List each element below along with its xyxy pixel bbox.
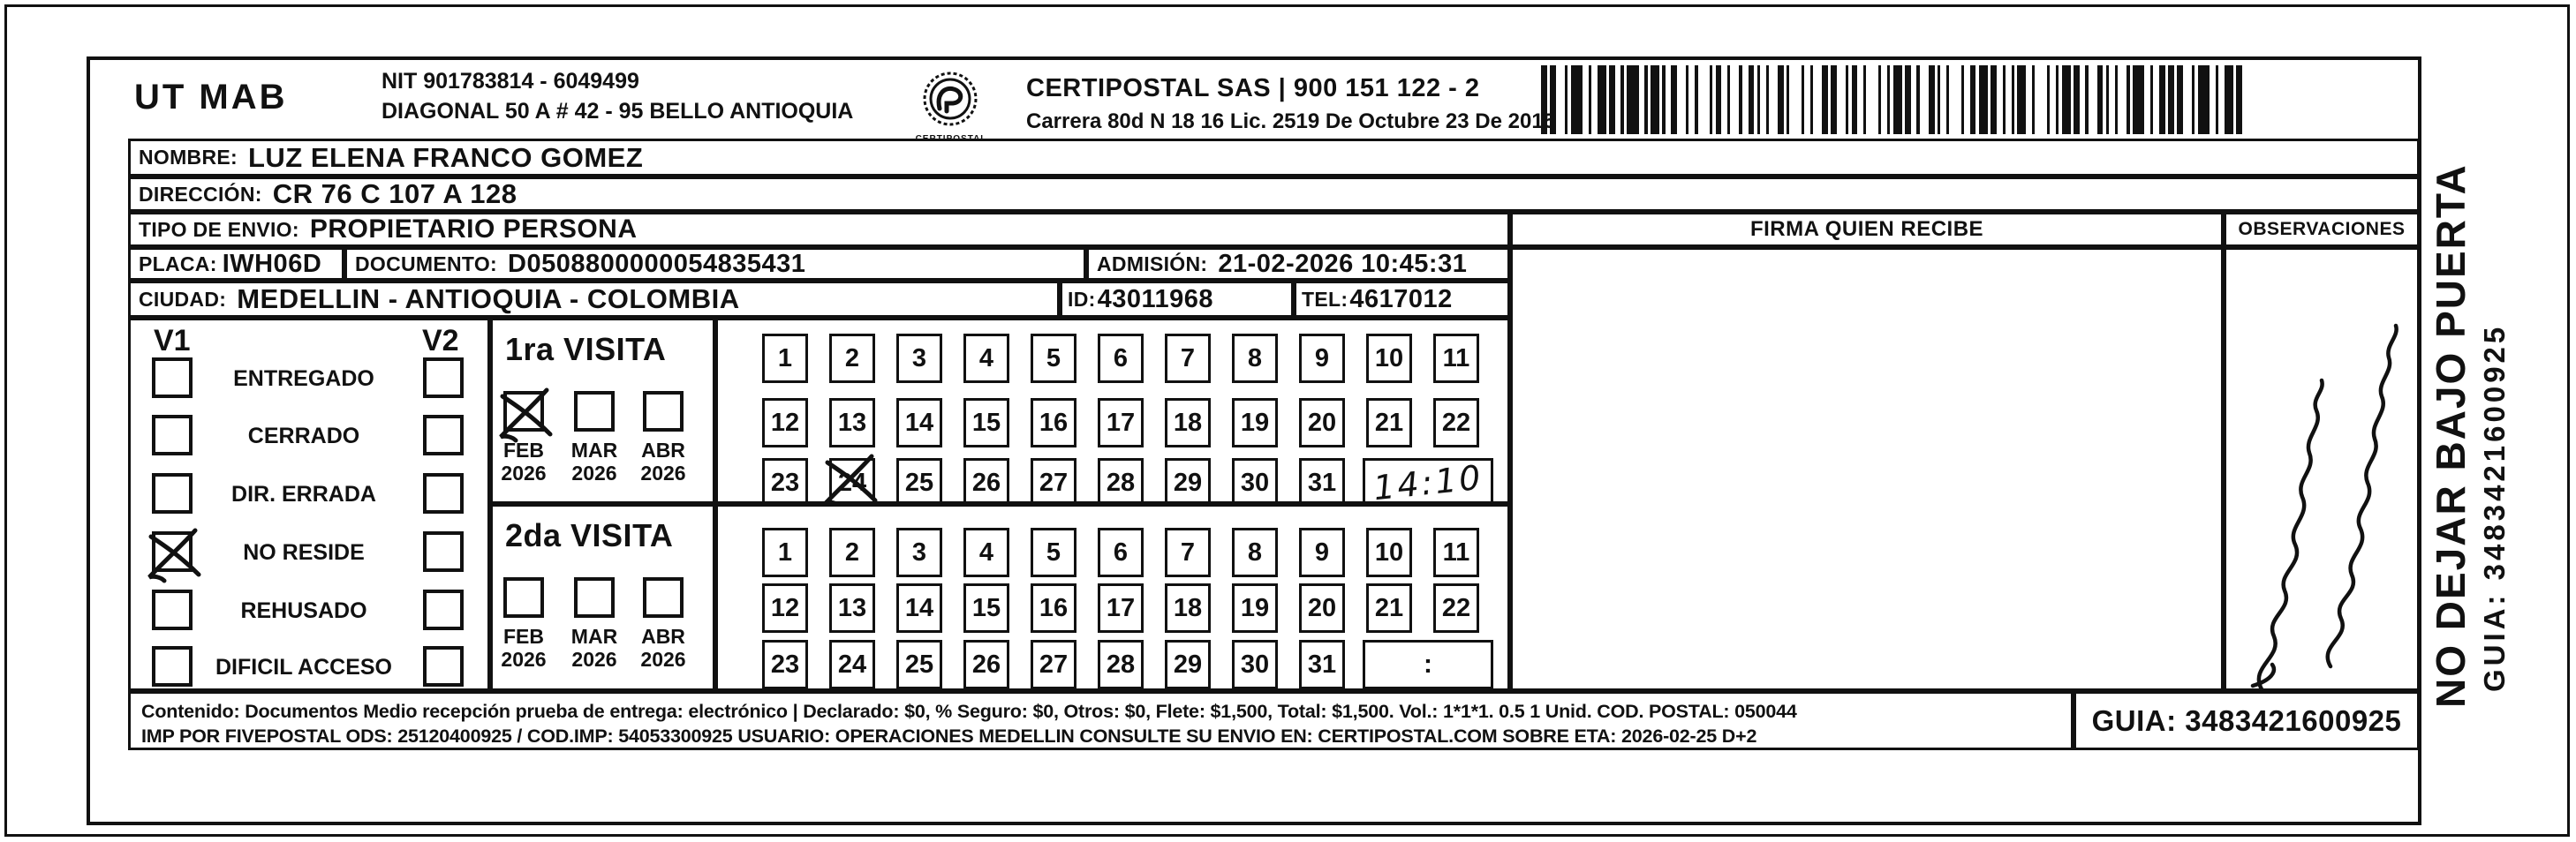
day-cell-15-visit-1: 15 (963, 398, 1009, 447)
placa-value: IWH06D (223, 250, 322, 279)
row-tipo-envio: TIPO DE ENVIO: PROPIETARIO PERSONA (128, 212, 1510, 247)
barcode-bar (2017, 65, 2026, 134)
day-number: 18 (1174, 594, 1202, 623)
barcode-bar (2236, 65, 2242, 134)
barcode-bar (1695, 65, 1697, 134)
day-cell-2-visit-1: 2 (829, 334, 875, 383)
nombre-label: NOMBRE: (139, 146, 238, 169)
day-cell-4-visit-1: 4 (963, 334, 1009, 383)
day-cell-14-visit-2: 14 (896, 583, 942, 633)
day-number: 8 (1248, 344, 1262, 373)
day-number: 17 (1107, 594, 1135, 623)
day-cell-18-visit-1: 18 (1165, 398, 1211, 447)
day-number: 25 (905, 469, 933, 498)
barcode-bar (1802, 65, 1804, 134)
day-cell-4-visit-2: 4 (963, 528, 1009, 577)
barcode-bar (2047, 65, 2050, 134)
side-guia-text: GUIA: 3483421600925 (2478, 136, 2512, 708)
status-label-cerrado: CERRADO (182, 424, 426, 449)
barcode-bar (2150, 65, 2153, 134)
day-number: 27 (1039, 650, 1068, 680)
day-cell-17-visit-2: 17 (1098, 583, 1144, 633)
day-number: 29 (1174, 469, 1202, 498)
day-cell-22-visit-1: 22 (1433, 398, 1479, 447)
day-cell-10-visit-2: 10 (1366, 528, 1412, 577)
day-number: 29 (1174, 650, 1202, 680)
day-cell-25-visit-2: 25 (896, 640, 942, 689)
day-number: 23 (771, 469, 799, 498)
v2-column-title: V2 (422, 324, 459, 358)
visit-1-title: 1ra VISITA (505, 331, 666, 368)
month-label: ABR (626, 625, 700, 648)
barcode-bar (1852, 65, 1858, 134)
day-number: 7 (1181, 538, 1195, 568)
day-number: 9 (1315, 538, 1329, 568)
day-cell-25-visit-1: 25 (896, 458, 942, 507)
day-cell-17-visit-1: 17 (1098, 398, 1144, 447)
day-cell-23-visit-1: 23 (762, 458, 808, 507)
day-number: 16 (1039, 409, 1068, 438)
day-cell-20-visit-1: 20 (1299, 398, 1345, 447)
day-number: 1 (778, 344, 792, 373)
month-label: MAR (557, 439, 631, 462)
day-cell-29-visit-2: 29 (1165, 640, 1211, 689)
barcode-bar (1970, 65, 1976, 134)
admision-label: ADMISIÓN: (1097, 252, 1207, 276)
status-label-dir-errada: DIR. ERRADA (182, 482, 426, 507)
day-number: 30 (1241, 469, 1269, 498)
contenido-line2: IMP POR FIVEPOSTAL ODS: 25120400925 / CO… (141, 725, 1756, 748)
barcode-bar (2032, 65, 2035, 134)
day-number: 15 (972, 409, 1001, 438)
row-direccion: DIRECCIÓN: CR 76 C 107 A 128 (128, 177, 2420, 212)
day-cell-19-visit-1: 19 (1232, 398, 1278, 447)
barcode-bar (2097, 65, 2104, 134)
day-number: 18 (1174, 409, 1202, 438)
barcode-bar (2133, 65, 2144, 134)
day-cell-1-visit-2: 1 (762, 528, 808, 577)
barcode-bar (1822, 65, 1828, 134)
day-number: 4 (979, 344, 993, 373)
day-number: 2 (845, 538, 859, 568)
day-cell-26-visit-1: 26 (963, 458, 1009, 507)
barcode-bar (2003, 65, 2006, 134)
day-number: 6 (1114, 344, 1128, 373)
barcode-bar (1671, 65, 1677, 134)
month-checkbox-abr-visit-2 (643, 577, 684, 618)
barcode-bar (1979, 65, 1988, 134)
day-number: 19 (1241, 594, 1269, 623)
day-number: 12 (771, 409, 799, 438)
day-cell-7-visit-2: 7 (1165, 528, 1211, 577)
day-number: 17 (1107, 409, 1135, 438)
day-cell-29-visit-1: 29 (1165, 458, 1211, 507)
observaciones-header: OBSERVACIONES (2224, 212, 2420, 247)
year-label: 2026 (557, 648, 631, 671)
day-number: 22 (1442, 409, 1470, 438)
year-label: 2026 (626, 648, 700, 671)
month-checkbox-mar-visit-2 (574, 577, 615, 618)
checkbox-v2-no-reside (423, 531, 464, 572)
day-number: 19 (1241, 409, 1269, 438)
barcode-bar (1749, 65, 1755, 134)
day-cell-18-visit-2: 18 (1165, 583, 1211, 633)
barcode-bar (1627, 65, 1638, 134)
day-cell-2-visit-2: 2 (829, 528, 875, 577)
month-checkbox-feb-visit-1 (503, 391, 544, 432)
day-number: 5 (1046, 538, 1061, 568)
year-label: 2026 (557, 462, 631, 485)
checkbox-v2-rehusado (423, 590, 464, 630)
barcode-bar (1757, 65, 1760, 134)
tipo-envio-label: TIPO DE ENVIO: (139, 218, 299, 242)
day-number: 20 (1308, 594, 1336, 623)
scanned-delivery-form: UT MAB NIT 901783814 - 6049499 DIAGONAL … (0, 0, 2576, 842)
day-cell-14-visit-1: 14 (896, 398, 942, 447)
time-box-visit-2: : (1363, 640, 1493, 689)
barcode-bar (1739, 65, 1741, 134)
day-number: 30 (1241, 650, 1269, 680)
day-cell-1-visit-1: 1 (762, 334, 808, 383)
day-cell-24-visit-2: 24 (829, 640, 875, 689)
cell-placa: PLACA: IWH06D (128, 247, 344, 281)
day-cell-10-visit-1: 10 (1366, 334, 1412, 383)
barcode-bar (1651, 65, 1659, 134)
documento-label: DOCUMENTO: (355, 252, 497, 276)
day-number: 12 (771, 594, 799, 623)
observaciones-area (2224, 247, 2420, 691)
day-cell-22-visit-2: 22 (1433, 583, 1479, 633)
month-label: ABR (626, 439, 700, 462)
sender-address: DIAGONAL 50 A # 42 - 95 BELLO ANTIOQUIA (381, 99, 853, 124)
barcode (1541, 65, 2243, 134)
day-number: 7 (1181, 344, 1195, 373)
month-checkbox-feb-visit-2 (503, 577, 544, 618)
tipo-envio-value: PROPIETARIO PERSONA (310, 214, 638, 244)
barcode-bar (1565, 65, 1568, 134)
day-cell-5-visit-1: 5 (1031, 334, 1076, 383)
status-label-rehusado: REHUSADO (182, 598, 426, 624)
day-cell-30-visit-2: 30 (1232, 640, 1278, 689)
barcode-bar (2012, 65, 2014, 134)
day-number: 13 (838, 409, 866, 438)
day-number: 21 (1375, 409, 1403, 438)
barcode-bar (1644, 65, 1647, 134)
visit-2-title: 2da VISITA (505, 517, 673, 554)
barcode-bar (2062, 65, 2071, 134)
day-cell-30-visit-1: 30 (1232, 458, 1278, 507)
barcode-bar (2106, 65, 2109, 134)
tel-value: 4617012 (1349, 285, 1452, 314)
documento-value: D0508800000054835431 (508, 250, 805, 279)
day-cell-20-visit-2: 20 (1299, 583, 1345, 633)
observaciones-handwriting (2226, 250, 2422, 694)
visit-2-day-grid: 1234567891011121314151617181920212223242… (715, 504, 1510, 691)
day-cell-27-visit-1: 27 (1031, 458, 1076, 507)
day-number: 2 (845, 344, 859, 373)
day-number: 3 (912, 538, 926, 568)
barcode-bar (1571, 65, 1583, 134)
contenido-cell: Contenido: Documentos Medio recepción pr… (128, 691, 2074, 750)
barcode-bar (1766, 65, 1769, 134)
barcode-bar (1916, 65, 1919, 134)
barcode-bar (2198, 65, 2210, 134)
day-number: 28 (1107, 650, 1135, 680)
barcode-bar (1831, 65, 1837, 134)
day-number: 5 (1046, 344, 1061, 373)
barcode-bar (1878, 65, 1881, 134)
day-number: 10 (1375, 538, 1403, 568)
checkbox-v2-dificil-acceso (423, 646, 464, 687)
barcode-bar (1662, 65, 1665, 134)
barcode-bar (2074, 65, 2080, 134)
status-label-no-reside: NO RESIDE (182, 540, 426, 566)
ciudad-value: MEDELLIN - ANTIOQUIA - COLOMBIA (237, 283, 739, 315)
day-cell-31-visit-1: 31 (1299, 458, 1345, 507)
day-number: 28 (1107, 469, 1135, 498)
day-number: 27 (1039, 469, 1068, 498)
barcode-bar (1541, 65, 1547, 134)
day-number: 31 (1308, 469, 1336, 498)
day-number: 26 (972, 469, 1001, 498)
day-number: 9 (1315, 344, 1329, 373)
barcode-bar (1589, 65, 1591, 134)
day-cell-19-visit-2: 19 (1232, 583, 1278, 633)
day-cell-12-visit-1: 12 (762, 398, 808, 447)
sender-name: UT MAB (134, 78, 288, 117)
handwritten-time: 14:10 (1371, 458, 1484, 508)
barcode-bar (1938, 65, 1940, 134)
time-box-visit-1: 14:10 (1363, 458, 1493, 507)
barcode-bar (2177, 65, 2183, 134)
day-cell-26-visit-2: 26 (963, 640, 1009, 689)
day-number: 10 (1375, 344, 1403, 373)
barcode-bar (1686, 65, 1688, 134)
ciudad-label: CIUDAD: (139, 288, 226, 312)
admision-value: 21-02-2026 10:45:31 (1218, 250, 1467, 279)
day-number: 26 (972, 650, 1001, 680)
barcode-bar (2159, 65, 2165, 134)
day-cell-3-visit-1: 3 (896, 334, 942, 383)
day-cell-9-visit-2: 9 (1299, 528, 1345, 577)
barcode-bar (1887, 65, 1890, 134)
day-cell-16-visit-1: 16 (1031, 398, 1076, 447)
day-number: 22 (1442, 594, 1470, 623)
day-number: 11 (1443, 344, 1470, 373)
barcode-bar (1929, 65, 1935, 134)
barcode-bar (1946, 65, 1949, 134)
certipostal-logo-icon (915, 67, 986, 134)
license-line: Carrera 80d N 18 16 Lic. 2519 De Octubre… (1026, 109, 1555, 134)
day-number: 16 (1039, 594, 1068, 623)
day-number: 13 (838, 594, 866, 623)
barcode-bar (1620, 65, 1623, 134)
barcode-bar (2168, 65, 2174, 134)
barcode-bar (1716, 65, 1722, 134)
day-cell-21-visit-2: 21 (1366, 583, 1412, 633)
barcode-bar (1961, 65, 1964, 134)
day-number: 14 (905, 409, 933, 438)
barcode-bar (1727, 65, 1730, 134)
barcode-bar (1778, 65, 1784, 134)
cell-documento: DOCUMENTO: D0508800000054835431 (344, 247, 1086, 281)
cell-ciudad: CIUDAD: MEDELLIN - ANTIOQUIA - COLOMBIA (128, 281, 1060, 318)
barcode-bar (1863, 65, 1866, 134)
day-number: 14 (905, 594, 933, 623)
month-label: FEB (487, 439, 561, 462)
barcode-bar (1787, 65, 1789, 134)
side-warning-text: NO DEJAR BAJO PUERTA (2427, 136, 2474, 708)
time-placeholder: : (1424, 650, 1432, 680)
barcode-bar (2192, 65, 2195, 134)
id-label: ID: (1068, 288, 1096, 312)
day-cell-13-visit-1: 13 (829, 398, 875, 447)
tel-label: TEL: (1302, 288, 1348, 312)
day-number: 11 (1443, 538, 1470, 568)
checkbox-v2-dir-errada (423, 473, 464, 514)
day-number: 6 (1114, 538, 1128, 568)
barcode-bar (1550, 65, 1556, 134)
year-label: 2026 (487, 462, 561, 485)
day-cell-31-visit-2: 31 (1299, 640, 1345, 689)
barcode-bar (1905, 65, 1911, 134)
checkbox-v2-entregado (423, 357, 464, 398)
barcode-bar (2216, 65, 2218, 134)
day-cell-8-visit-1: 8 (1232, 334, 1278, 383)
visit-1-day-grid: 1234567891011121314151617181920212223242… (715, 318, 1510, 504)
day-cell-15-visit-2: 15 (963, 583, 1009, 633)
day-cell-3-visit-2: 3 (896, 528, 942, 577)
barcode-bar (1810, 65, 1813, 134)
cell-id: ID: 43011968 (1060, 281, 1294, 318)
row-nombre: NOMBRE: LUZ ELENA FRANCO GOMEZ (128, 139, 2420, 177)
firma-signature-area (1510, 247, 2224, 691)
day-number: 8 (1248, 538, 1262, 568)
barcode-bar (1710, 65, 1712, 134)
day-number: 3 (912, 344, 926, 373)
direccion-label: DIRECCIÓN: (139, 183, 262, 207)
day-cell-28-visit-2: 28 (1098, 640, 1144, 689)
handwritten-x-mark (823, 452, 880, 508)
day-cell-8-visit-2: 8 (1232, 528, 1278, 577)
day-cell-11-visit-2: 11 (1433, 528, 1479, 577)
year-label: 2026 (487, 648, 561, 671)
id-value: 43011968 (1098, 285, 1213, 314)
day-cell-21-visit-1: 21 (1366, 398, 1412, 447)
handwritten-x-mark (498, 386, 555, 442)
day-number: 24 (838, 650, 866, 680)
day-number: 20 (1308, 409, 1336, 438)
cell-tel: TEL: 4617012 (1294, 281, 1510, 318)
day-cell-27-visit-2: 27 (1031, 640, 1076, 689)
barcode-bar (2115, 65, 2118, 134)
barcode-bar (2127, 65, 2129, 134)
day-number: 21 (1375, 594, 1403, 623)
day-cell-12-visit-2: 12 (762, 583, 808, 633)
day-cell-6-visit-1: 6 (1098, 334, 1144, 383)
month-checkbox-mar-visit-1 (574, 391, 615, 432)
status-label-dificil-acceso: DIFICIL ACCESO (182, 655, 426, 680)
month-label: FEB (487, 625, 561, 648)
barcode-bar (2085, 65, 2088, 134)
day-cell-13-visit-2: 13 (829, 583, 875, 633)
day-number: 25 (905, 650, 933, 680)
day-number: 23 (771, 650, 799, 680)
barcode-bar (2225, 65, 2233, 134)
barcode-bar (1609, 65, 1615, 134)
checkbox-v2-cerrado (423, 415, 464, 455)
day-cell-6-visit-2: 6 (1098, 528, 1144, 577)
month-label: MAR (557, 625, 631, 648)
nombre-value: LUZ ELENA FRANCO GOMEZ (248, 142, 643, 174)
company-line: CERTIPOSTAL SAS | 900 151 122 - 2 (1026, 74, 1480, 103)
side-rotated-text: NO DEJAR BAJO PUERTA GUIA: 3483421600925 (2427, 136, 2519, 708)
placa-label: PLACA: (139, 252, 217, 276)
day-number: 1 (778, 538, 792, 568)
barcode-bar (1991, 65, 1997, 134)
status-panel: V1 V2 ENTREGADOCERRADODIR. ERRADANO RESI… (128, 318, 490, 691)
visit-1-months-panel: 1ra VISITAFEB2026MAR2026ABR2026 (490, 318, 715, 504)
visit-2-months-panel: 2da VISITAFEB2026MAR2026ABR2026 (490, 504, 715, 691)
day-cell-5-visit-2: 5 (1031, 528, 1076, 577)
month-checkbox-abr-visit-1 (643, 391, 684, 432)
v1-column-title: V1 (154, 324, 191, 358)
day-cell-24-visit-1: 24 (829, 458, 875, 507)
direccion-value: CR 76 C 107 A 128 (273, 178, 517, 210)
cell-admision: ADMISIÓN: 21-02-2026 10:45:31 (1086, 247, 1510, 281)
firma-header: FIRMA QUIEN RECIBE (1510, 212, 2224, 247)
barcode-bar (1598, 65, 1606, 134)
day-number: 4 (979, 538, 993, 568)
day-number: 31 (1308, 650, 1336, 680)
day-cell-9-visit-1: 9 (1299, 334, 1345, 383)
sender-nit: NIT 901783814 - 6049499 (381, 69, 639, 94)
day-number: 15 (972, 594, 1001, 623)
day-cell-7-visit-1: 7 (1165, 334, 1211, 383)
day-cell-16-visit-2: 16 (1031, 583, 1076, 633)
barcode-bar (1893, 65, 1902, 134)
contenido-line1: Contenido: Documentos Medio recepción pr… (141, 701, 1797, 723)
guia-number-cell: GUIA: 3483421600925 (2074, 691, 2420, 750)
day-cell-11-visit-1: 11 (1433, 334, 1479, 383)
status-label-entregado: ENTREGADO (182, 366, 426, 392)
barcode-bar (2056, 65, 2059, 134)
barcode-bar (1846, 65, 1848, 134)
day-cell-23-visit-2: 23 (762, 640, 808, 689)
year-label: 2026 (626, 462, 700, 485)
day-cell-28-visit-1: 28 (1098, 458, 1144, 507)
